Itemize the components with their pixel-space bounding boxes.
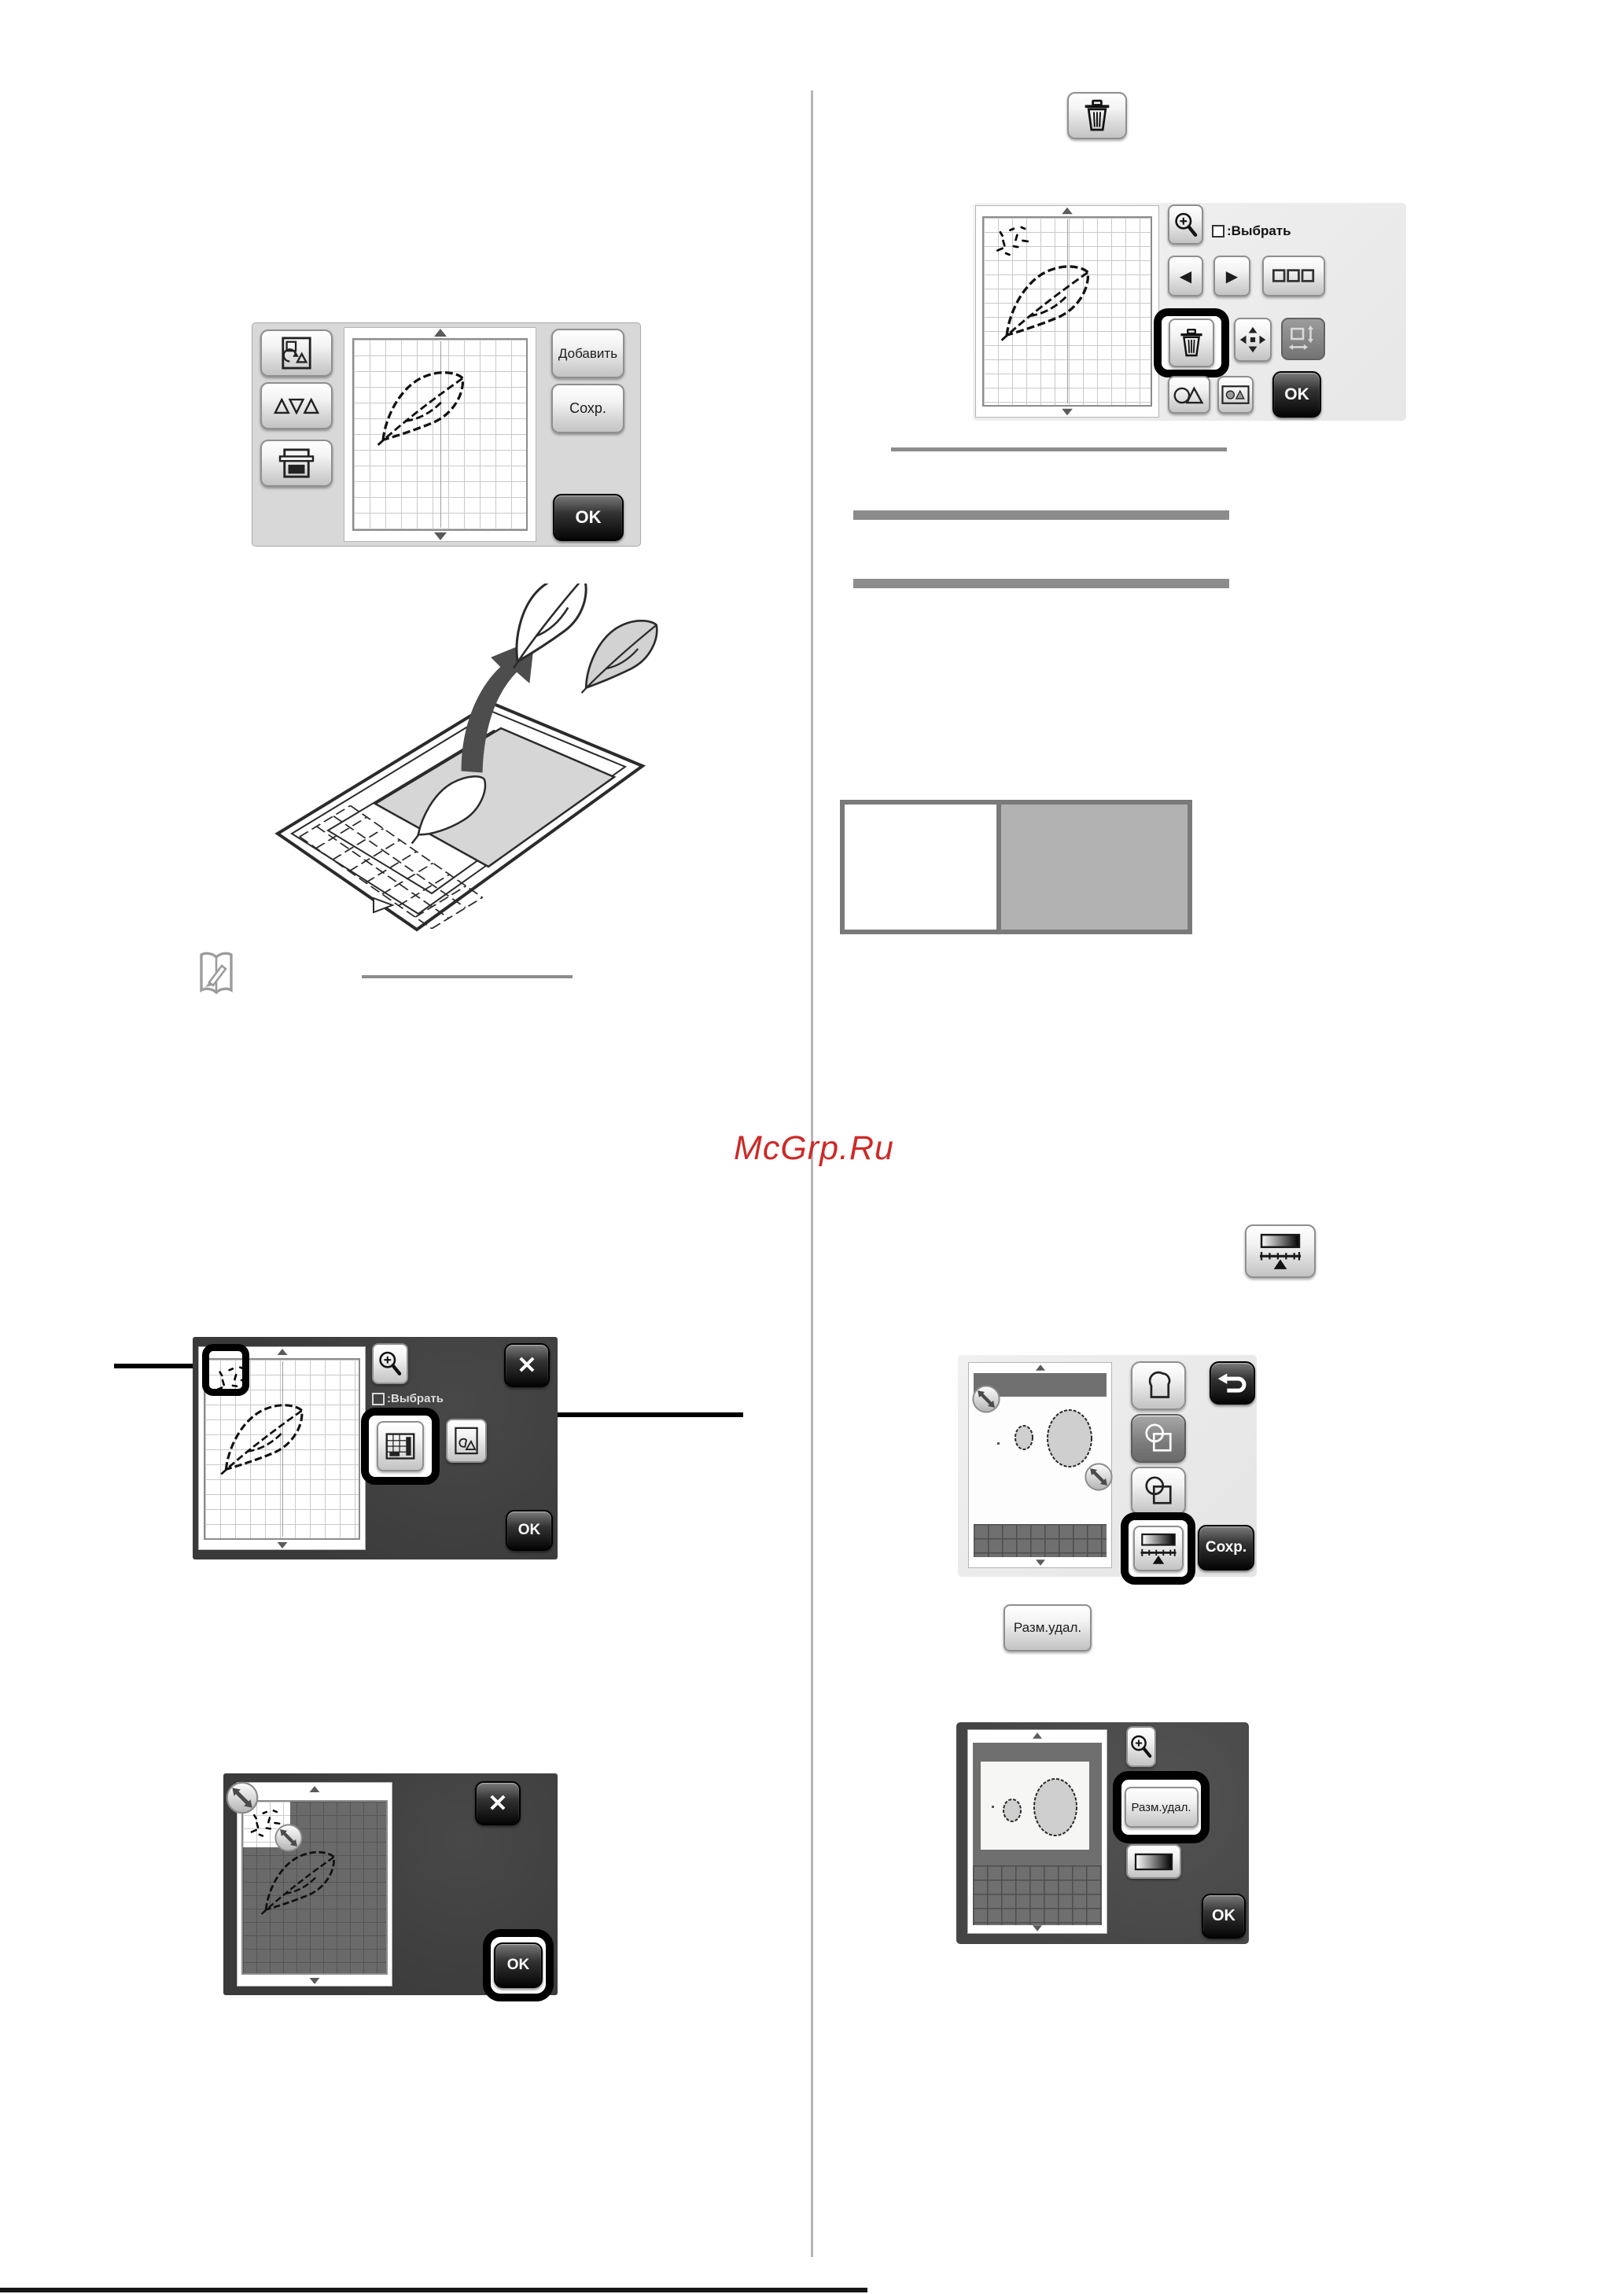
ok-button-label: OK — [576, 507, 602, 528]
comparison-table — [840, 800, 1192, 934]
object-select-icon — [453, 1426, 480, 1456]
ok-button-label: OK — [1212, 1907, 1235, 1925]
size-delete-button[interactable]: Разм.удал. — [1125, 1787, 1199, 1828]
mat-grid-strip — [973, 1865, 1102, 1925]
trash-button[interactable] — [1169, 319, 1214, 367]
checkbox-glyph — [372, 1393, 385, 1405]
size-delete-highlight-ring: Разм.удал. — [1113, 1771, 1210, 1843]
traced-shapes — [974, 1397, 1107, 1524]
trash-button-standalone[interactable] — [1067, 92, 1127, 139]
outline-and-fill-icon — [1142, 1422, 1175, 1455]
shape-outline-icon — [1143, 1370, 1174, 1401]
outline-only-icon — [1142, 1475, 1175, 1508]
magnifier-icon — [1173, 212, 1199, 238]
scroll-up-marker[interactable] — [1062, 208, 1073, 215]
note-rule — [362, 975, 573, 978]
scroll-down-marker[interactable] — [434, 532, 447, 540]
scroll-down-marker[interactable] — [1036, 1559, 1045, 1566]
scroll-up-marker[interactable] — [1033, 1732, 1042, 1739]
save-button[interactable]: Сохр. — [551, 384, 624, 433]
crop-screen: ✕ OK — [223, 1773, 558, 1995]
load-mat-icon — [278, 447, 315, 479]
scroll-down-marker[interactable] — [1062, 409, 1073, 416]
scan-speckles — [992, 221, 1034, 260]
scroll-up-marker[interactable] — [1036, 1364, 1045, 1371]
edit-screen-dialog: Добавить Сохр. OK — [252, 322, 641, 547]
mat-removal-illustration — [256, 584, 668, 937]
ok-button-label: OK — [1284, 385, 1309, 404]
outline-and-fill-button[interactable] — [1131, 1414, 1186, 1463]
section-rule-2 — [853, 579, 1229, 588]
scan-edit-screen: :Выбрать ◀ ▶ OK — [973, 203, 1406, 421]
flip-icon — [274, 398, 319, 414]
save-button-label: Сохр. — [569, 400, 606, 417]
scroll-down-marker[interactable] — [310, 1978, 320, 1984]
multi-select-icon — [1272, 267, 1316, 285]
footer-rule — [0, 2288, 867, 2292]
close-button[interactable]: ✕ — [504, 1343, 550, 1387]
resize-handle-selection[interactable] — [274, 1822, 304, 1854]
resize-handle-top-left[interactable] — [225, 1780, 260, 1816]
select-hint-label: :Выбрать — [1227, 223, 1291, 239]
column-divider — [811, 90, 813, 2257]
zoom-button[interactable] — [1126, 1726, 1156, 1767]
table-cell-left — [845, 805, 996, 930]
crop-canvas[interactable] — [238, 1783, 392, 1986]
size-delete-label: Разм.удал. — [1131, 1801, 1191, 1814]
leaf-drawing — [996, 262, 1094, 342]
ok-button[interactable]: OK — [494, 1942, 543, 1988]
close-button[interactable]: ✕ — [475, 1781, 521, 1825]
back-button[interactable] — [1210, 1361, 1255, 1405]
resize-handle-bottom-right[interactable] — [1084, 1462, 1114, 1492]
mat-grid — [352, 338, 528, 531]
close-icon: ✕ — [488, 1790, 507, 1817]
scroll-down-marker[interactable] — [277, 1542, 287, 1548]
ignore-size-slider-icon — [1255, 1232, 1305, 1271]
shape-outline-button[interactable] — [1131, 1361, 1186, 1410]
region-select-screen: :Выбрать ✕ OK — [193, 1337, 558, 1559]
add-button[interactable]: Добавить — [551, 329, 624, 378]
scanned-shapes — [981, 1762, 1089, 1850]
ok-button-label: OK — [518, 1522, 541, 1539]
move-icon — [1239, 326, 1266, 353]
next-icon: ▶ — [1226, 267, 1238, 286]
frame-shapes-button[interactable] — [1217, 376, 1254, 414]
region-select-icon — [385, 1431, 416, 1461]
ignore-size-button[interactable] — [1133, 1526, 1184, 1571]
scan-canvas[interactable] — [976, 206, 1158, 417]
region-select-highlight-ring — [361, 1408, 440, 1485]
load-mat-button[interactable] — [260, 440, 333, 487]
ok-button[interactable]: OK — [506, 1510, 553, 1551]
scan-grid — [982, 216, 1152, 407]
ok-highlight-ring: OK — [483, 1929, 554, 2001]
magnifier-icon — [377, 1350, 403, 1377]
section-rule-thin — [891, 447, 1227, 451]
multi-select-button[interactable] — [1262, 256, 1325, 296]
arrange-objects-icon — [279, 337, 314, 370]
trash-icon — [1179, 328, 1204, 358]
resize-icon — [1288, 325, 1318, 353]
leaf-drawing — [216, 1401, 307, 1476]
trace-screen: Сохр. — [958, 1355, 1257, 1577]
scroll-down-marker[interactable] — [1033, 1925, 1042, 1931]
prev-button[interactable]: ◀ — [1168, 256, 1203, 296]
table-cell-right — [1001, 805, 1188, 930]
back-icon — [1217, 1372, 1248, 1395]
ignore-size-button-standalone[interactable] — [1245, 1224, 1316, 1278]
gradient-bar-icon — [1134, 1853, 1173, 1871]
manual-page: Добавить Сохр. OK — [0, 0, 1624, 2294]
mat-area — [973, 1743, 1102, 1925]
ok-button-label: OK — [507, 1957, 530, 1974]
leaf-drawing — [373, 368, 469, 447]
outline-shapes-button[interactable] — [1168, 376, 1210, 414]
section-rule-1 — [853, 510, 1229, 520]
arrange-objects-button[interactable] — [260, 330, 333, 377]
size-delete-button-standalone[interactable]: Разм.удал. — [1003, 1604, 1092, 1651]
note-icon — [198, 950, 234, 996]
scroll-up-marker[interactable] — [310, 1786, 320, 1792]
ignore-size-slider-icon — [1137, 1531, 1180, 1566]
resize-button-disabled — [1281, 318, 1325, 360]
next-button[interactable]: ▶ — [1213, 256, 1250, 296]
edit-canvas[interactable] — [344, 328, 536, 541]
save-button[interactable]: Сохр. — [1198, 1525, 1254, 1570]
magnifier-icon — [1129, 1734, 1153, 1759]
ignore-size-highlight-ring — [1121, 1512, 1195, 1585]
checkbox-glyph — [1212, 225, 1224, 238]
leaf-gray — [576, 620, 661, 693]
mat-grid-strip — [974, 1524, 1107, 1557]
scroll-up-marker[interactable] — [277, 1349, 287, 1355]
select-hint-label: :Выбрать — [387, 1392, 444, 1405]
size-slider-button[interactable] — [1126, 1844, 1181, 1879]
frame-shapes-icon — [1221, 383, 1250, 407]
ok-button[interactable]: OK — [1272, 371, 1321, 418]
region-canvas[interactable] — [199, 1347, 365, 1549]
region-select-button[interactable] — [377, 1421, 424, 1471]
trace-canvas[interactable] — [969, 1363, 1111, 1567]
save-button-label: Сохр. — [1206, 1539, 1247, 1556]
trash-icon — [1083, 99, 1111, 132]
move-button[interactable] — [1234, 318, 1272, 362]
size-delete-screen: Разм.удал. OK — [956, 1722, 1249, 1944]
close-icon: ✕ — [517, 1352, 536, 1379]
outline-only-button[interactable] — [1131, 1467, 1186, 1515]
flip-button[interactable] — [260, 382, 333, 429]
add-button-label: Добавить — [558, 346, 617, 362]
select-hint: :Выбрать — [1212, 223, 1291, 239]
object-select-button[interactable] — [446, 1419, 487, 1463]
outline-shapes-icon — [1173, 384, 1206, 406]
prev-icon: ◀ — [1180, 267, 1191, 286]
watermark: McGrp.Ru — [676, 1129, 952, 1168]
ok-button[interactable]: OK — [553, 494, 624, 541]
select-hint: :Выбрать — [372, 1392, 444, 1405]
size-delete-label: Разм.удал. — [1014, 1620, 1081, 1636]
zoom-button[interactable] — [1168, 204, 1203, 245]
scroll-up-marker[interactable] — [434, 329, 447, 337]
ok-button[interactable]: OK — [1202, 1894, 1246, 1939]
size-delete-canvas[interactable] — [968, 1730, 1107, 1933]
speckles-highlight-ring — [202, 1344, 249, 1396]
zoom-button[interactable] — [372, 1343, 408, 1384]
trash-highlight-ring — [1154, 308, 1229, 377]
resize-handle-top-left[interactable] — [971, 1383, 1001, 1415]
leaf-drawing — [257, 1847, 339, 1917]
dimmed-grid — [241, 1800, 388, 1975]
